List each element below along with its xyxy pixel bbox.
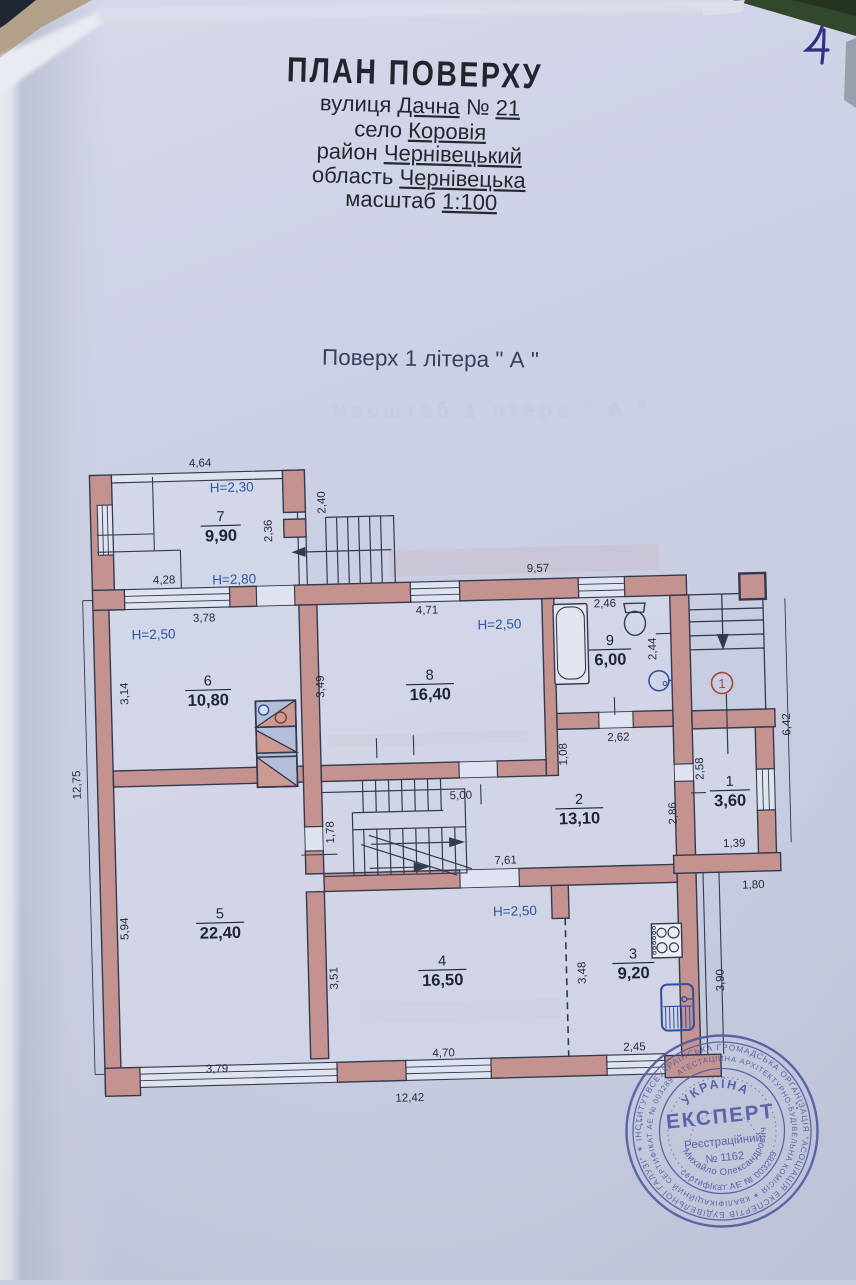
- svg-text:масштаб 1:100: масштаб 1:100: [345, 186, 497, 215]
- svg-text:9: 9: [606, 633, 614, 649]
- svg-text:3,60: 3,60: [714, 791, 747, 810]
- svg-text:4,70: 4,70: [432, 1047, 455, 1060]
- svg-text:16,40: 16,40: [409, 685, 451, 704]
- svg-text:3,90: 3,90: [715, 969, 728, 992]
- svg-text:Н=2,50: Н=2,50: [131, 626, 175, 642]
- svg-text:3,78: 3,78: [193, 612, 216, 625]
- svg-text:2,40: 2,40: [316, 491, 329, 514]
- svg-text:6,00: 6,00: [594, 651, 627, 670]
- svg-text:8: 8: [426, 668, 434, 684]
- svg-text:2,36: 2,36: [263, 520, 276, 543]
- svg-text:4,64: 4,64: [189, 457, 212, 470]
- svg-text:4: 4: [438, 953, 446, 969]
- svg-text:1,80: 1,80: [742, 879, 765, 892]
- svg-text:4,71: 4,71: [416, 604, 439, 617]
- svg-text:9,20: 9,20: [617, 964, 650, 983]
- svg-text:9,90: 9,90: [205, 527, 238, 546]
- svg-text:6: 6: [204, 673, 212, 689]
- svg-text:10,80: 10,80: [187, 691, 229, 710]
- svg-text:Н=2,50: Н=2,50: [477, 616, 521, 632]
- svg-text:2,46: 2,46: [594, 598, 617, 611]
- svg-text:3,79: 3,79: [206, 1063, 229, 1076]
- svg-text:1: 1: [718, 676, 726, 691]
- svg-text:13,10: 13,10: [559, 809, 601, 828]
- svg-text:9,57: 9,57: [527, 563, 550, 576]
- svg-text:3,49: 3,49: [315, 675, 328, 698]
- svg-text:Н=2,30: Н=2,30: [210, 479, 254, 495]
- svg-text:3,14: 3,14: [119, 682, 132, 705]
- svg-text:7: 7: [216, 509, 224, 525]
- svg-text:Поверх 1 літера " А ": Поверх 1 літера " А ": [322, 345, 539, 373]
- svg-text:5,00: 5,00: [450, 790, 473, 803]
- svg-text:2,45: 2,45: [623, 1041, 646, 1054]
- svg-text:2,86: 2,86: [667, 802, 680, 825]
- svg-text:22,40: 22,40: [200, 924, 242, 943]
- svg-text:1,39: 1,39: [723, 837, 746, 850]
- svg-text:3: 3: [629, 946, 637, 962]
- svg-text:5: 5: [216, 906, 224, 922]
- svg-text:7,61: 7,61: [494, 854, 517, 867]
- svg-text:1,08: 1,08: [558, 743, 571, 766]
- svg-text:3,51: 3,51: [328, 967, 341, 990]
- svg-text:2: 2: [575, 792, 583, 808]
- svg-text:6,42: 6,42: [781, 713, 794, 736]
- svg-text:1: 1: [725, 774, 733, 790]
- svg-text:5,94: 5,94: [119, 917, 132, 940]
- svg-text:2,58: 2,58: [694, 757, 707, 780]
- svg-text:Н=2,80: Н=2,80: [212, 571, 256, 587]
- svg-text:масштаб 1 лтера " А ": масштаб 1 лтера " А ": [332, 399, 650, 422]
- svg-text:12,75: 12,75: [71, 770, 84, 799]
- svg-text:4,28: 4,28: [153, 574, 176, 587]
- svg-text:1,78: 1,78: [325, 821, 338, 844]
- svg-text:2,62: 2,62: [607, 731, 630, 744]
- svg-text:Н=2,50: Н=2,50: [493, 903, 537, 919]
- svg-text:2,44: 2,44: [647, 637, 660, 660]
- svg-text:12,42: 12,42: [395, 1092, 424, 1105]
- svg-text:16,50: 16,50: [422, 971, 464, 990]
- svg-text:3,48: 3,48: [576, 961, 589, 984]
